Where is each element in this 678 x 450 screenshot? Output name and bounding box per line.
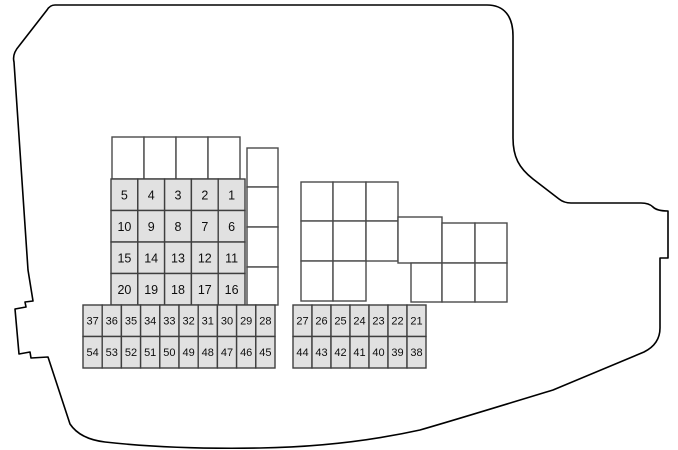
relay-cell-19 <box>442 223 475 263</box>
fuse-number: 4 <box>148 188 155 202</box>
fuse-number: 42 <box>334 347 346 359</box>
relay-cell-2 <box>144 137 176 179</box>
fuse-number: 1 <box>228 188 235 202</box>
fuse-number: 54 <box>86 347 98 359</box>
fuse-number: 34 <box>144 315 156 327</box>
fuse-number: 3 <box>175 188 182 202</box>
relay-cell-7 <box>247 227 278 267</box>
fuse-number: 31 <box>202 315 214 327</box>
fuse-number: 29 <box>240 315 252 327</box>
fuse-number: 35 <box>125 315 137 327</box>
fuse-number: 5 <box>121 188 128 202</box>
relay-cell-20 <box>475 223 507 263</box>
relay-cell-18 <box>411 263 442 302</box>
fuse-number: 23 <box>372 315 384 327</box>
fuse-number: 11 <box>225 251 238 265</box>
relay-cell-13 <box>333 221 366 261</box>
fuse-number: 27 <box>296 315 308 327</box>
fuse-number: 24 <box>353 315 365 327</box>
fuse-number: 51 <box>144 347 156 359</box>
relay-cell-22 <box>475 263 507 302</box>
relay-cell-1 <box>112 137 144 179</box>
fuse-number: 49 <box>182 347 194 359</box>
fuse-number: 2 <box>201 188 208 202</box>
relay-cell-5 <box>247 148 278 187</box>
fuse-number: 32 <box>182 315 194 327</box>
fuse-number: 30 <box>221 315 233 327</box>
fuse-number: 53 <box>106 347 118 359</box>
relay-cell-17 <box>398 217 442 263</box>
fuse-number: 47 <box>221 347 233 359</box>
fuse-number: 12 <box>198 251 212 265</box>
fuse-number: 21 <box>410 315 422 327</box>
fuse-number: 46 <box>240 347 252 359</box>
fuse-number: 15 <box>117 251 131 265</box>
relay-cell-11 <box>366 182 398 221</box>
fuse-number: 40 <box>372 347 384 359</box>
fuse-number: 10 <box>117 220 131 234</box>
fuse-box-diagram: 5432110987615141312112019181716373635343… <box>0 0 678 450</box>
relay-cell-3 <box>176 137 208 179</box>
fuse-number: 18 <box>171 283 185 297</box>
fuse-number: 7 <box>201 220 208 234</box>
relay-cell-21 <box>442 263 475 302</box>
fuse-number: 9 <box>148 220 155 234</box>
fuse-number: 26 <box>315 315 327 327</box>
fuse-number: 50 <box>163 347 175 359</box>
fuse-number: 33 <box>163 315 175 327</box>
fuse-box-diagram-page: 5432110987615141312112019181716373635343… <box>0 0 678 450</box>
fuse-number: 25 <box>334 315 346 327</box>
fuse-number: 19 <box>144 283 158 297</box>
fuse-number: 39 <box>391 347 403 359</box>
fuse-number: 13 <box>171 251 185 265</box>
fuse-number: 36 <box>106 315 118 327</box>
fuse-number: 43 <box>315 347 327 359</box>
fuse-number: 28 <box>259 315 271 327</box>
fuse-number: 20 <box>117 283 131 297</box>
relay-cell-10 <box>333 182 366 221</box>
relay-cell-15 <box>301 261 333 301</box>
fuse-number: 6 <box>228 220 235 234</box>
fuse-number: 16 <box>225 283 239 297</box>
relay-cell-14 <box>366 221 398 261</box>
fuse-number: 45 <box>259 347 271 359</box>
fuse-number: 38 <box>410 347 422 359</box>
fuse-number: 14 <box>144 251 158 265</box>
relay-cell-4 <box>208 137 240 179</box>
relay-cell-16 <box>333 261 366 301</box>
fuse-number: 41 <box>353 347 365 359</box>
relay-cell-6 <box>247 187 278 227</box>
relay-cell-8 <box>247 267 278 305</box>
relay-cell-9 <box>301 182 333 221</box>
fuse-number: 8 <box>175 220 182 234</box>
fuse-number: 37 <box>86 315 98 327</box>
fuse-number: 52 <box>125 347 137 359</box>
fuse-number: 17 <box>198 283 212 297</box>
fuse-number: 48 <box>202 347 214 359</box>
fuse-number: 44 <box>296 347 308 359</box>
fuse-number: 22 <box>391 315 403 327</box>
relay-cell-12 <box>301 221 333 261</box>
